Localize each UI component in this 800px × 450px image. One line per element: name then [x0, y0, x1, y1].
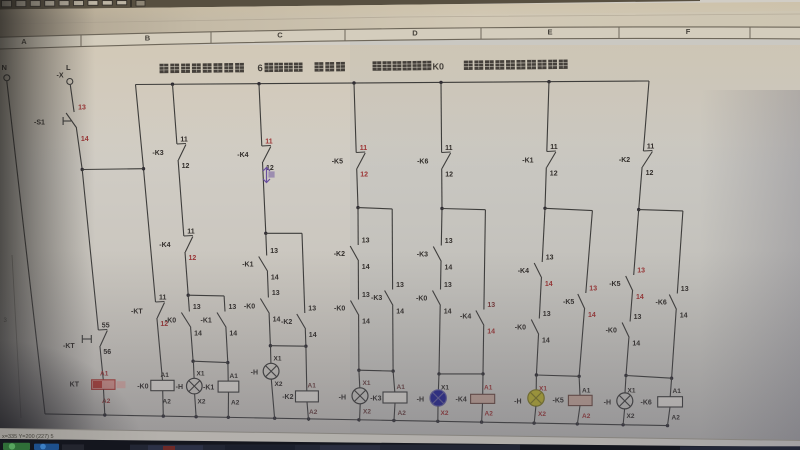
svg-text:C: C — [277, 31, 283, 40]
svg-text:E: E — [547, 28, 552, 37]
svg-text:F: F — [686, 27, 691, 36]
svg-text:K0: K0 — [432, 61, 444, 71]
svg-text:x=335 Y=200 (227) 5: x=335 Y=200 (227) 5 — [2, 434, 54, 440]
svg-text:D: D — [412, 29, 418, 38]
svg-text:B: B — [145, 34, 151, 43]
svg-text:6: 6 — [257, 63, 262, 74]
